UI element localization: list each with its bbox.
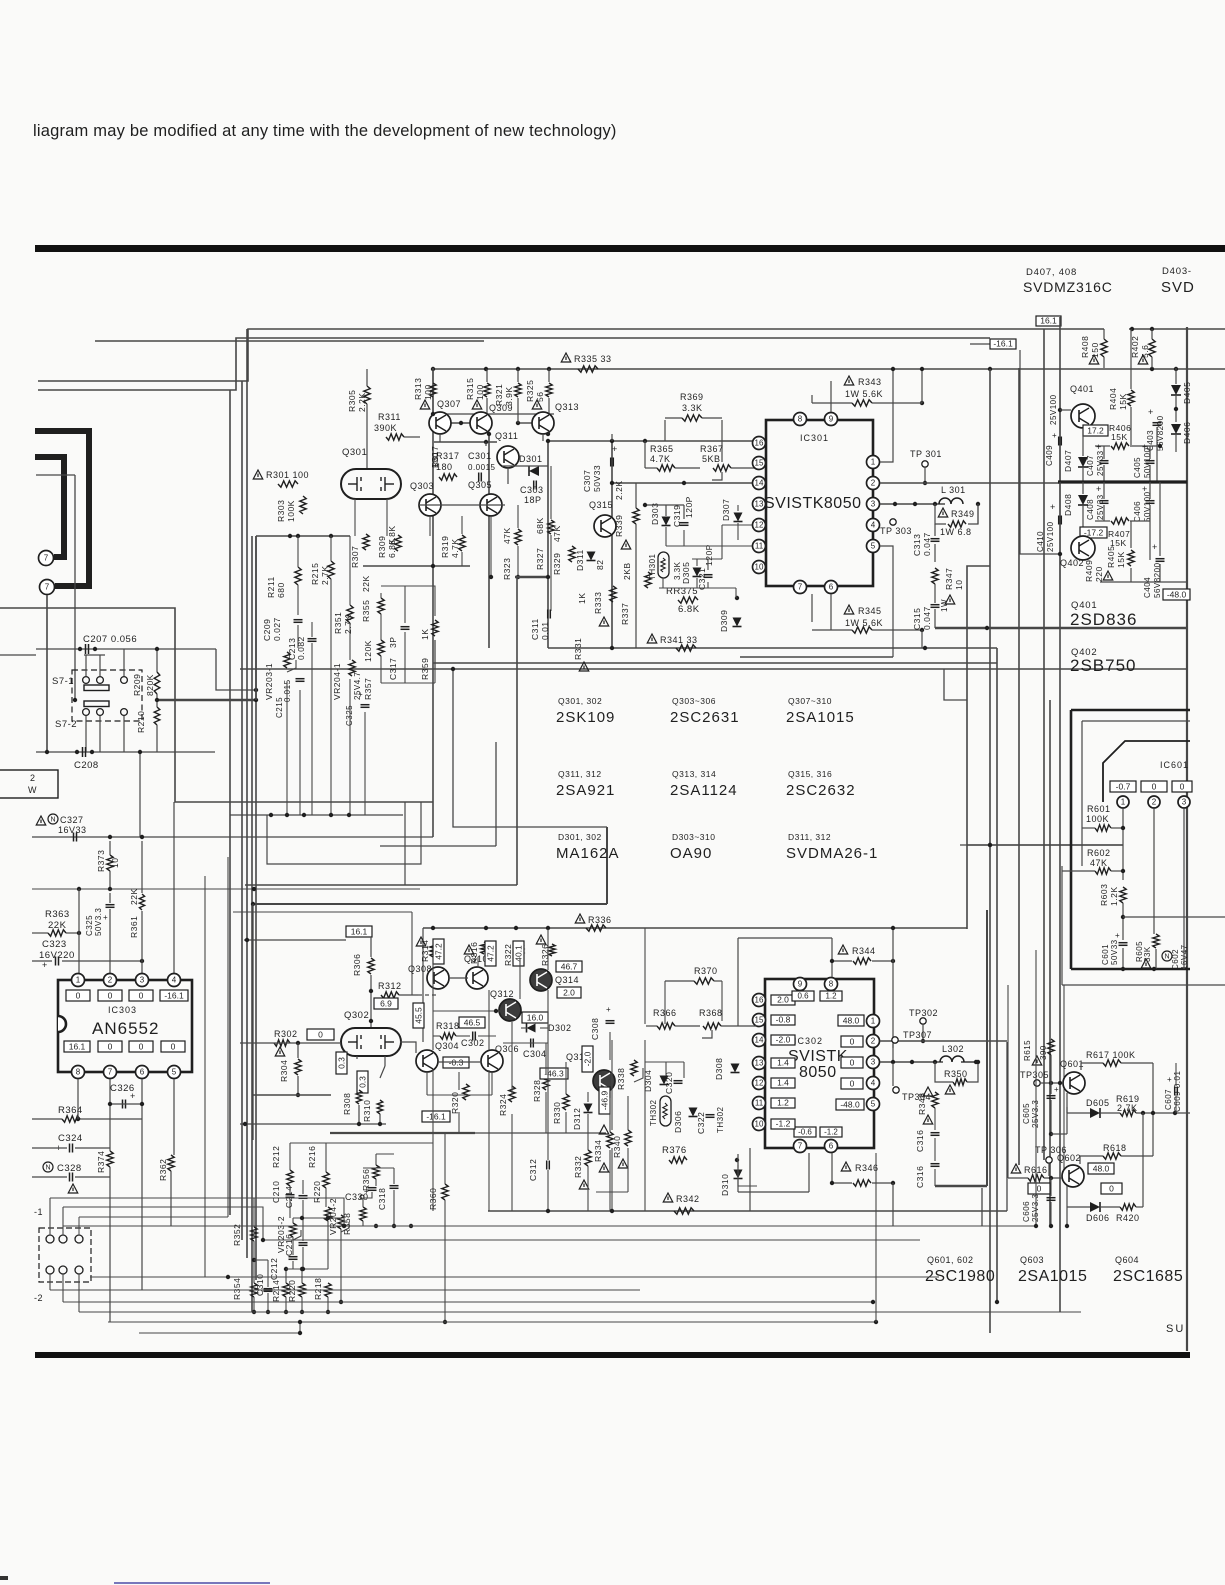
svg-text:-0.6: -0.6 [798, 1127, 812, 1136]
svg-text:C210: C210 [271, 1181, 281, 1203]
svg-text:Q304: Q304 [435, 1041, 459, 1051]
svg-text:12: 12 [755, 1079, 764, 1088]
svg-text:R365: R365 [650, 444, 674, 454]
svg-text:R356: R356 [361, 1169, 371, 1191]
svg-text:R323: R323 [502, 558, 512, 580]
svg-text:+: + [130, 1091, 136, 1101]
svg-text:-0.7: -0.7 [1116, 781, 1131, 791]
svg-text:R216: R216 [307, 1146, 317, 1168]
svg-text:7: 7 [108, 1068, 113, 1077]
svg-text:22K: 22K [129, 888, 139, 905]
svg-text:5KB: 5KB [702, 454, 721, 464]
svg-text:15: 15 [755, 459, 764, 468]
svg-text:47K: 47K [502, 527, 512, 544]
svg-text:VR204-1: VR204-1 [332, 663, 342, 700]
svg-text:R329: R329 [552, 553, 562, 575]
svg-text:Q314: Q314 [555, 975, 579, 985]
svg-text:C316: C316 [915, 1166, 925, 1188]
svg-text:3: 3 [871, 1058, 876, 1067]
svg-text:R303: R303 [276, 500, 286, 522]
svg-text:1.4: 1.4 [777, 1057, 789, 1067]
svg-text:0.3: 0.3 [336, 1057, 346, 1069]
svg-text:SVISTK: SVISTK [788, 1048, 848, 1065]
svg-text:R364: R364 [58, 1105, 83, 1116]
svg-text:R360: R360 [428, 1188, 438, 1210]
svg-text:0: 0 [1180, 781, 1185, 791]
svg-text:3: 3 [140, 976, 145, 985]
svg-text:11: 11 [755, 542, 764, 551]
svg-text:680: 680 [276, 582, 286, 598]
svg-text:15: 15 [755, 1016, 764, 1025]
svg-text:50V33: 50V33 [1110, 939, 1119, 965]
svg-text:D606: D606 [1086, 1213, 1110, 1223]
svg-text:1.2K: 1.2K [1109, 887, 1119, 907]
svg-text:0.027: 0.027 [272, 617, 282, 641]
svg-text:-16.1: -16.1 [426, 1111, 446, 1121]
svg-text:5: 5 [871, 542, 876, 551]
svg-text:13: 13 [755, 500, 764, 509]
svg-text:L 301: L 301 [941, 485, 966, 495]
svg-text:MA162A: MA162A [556, 845, 620, 862]
svg-text:4.7K: 4.7K [650, 454, 671, 464]
svg-text:SVDMA26-1: SVDMA26-1 [786, 845, 878, 862]
svg-text:R333: R333 [593, 592, 603, 614]
svg-text:R335 33: R335 33 [574, 354, 612, 364]
svg-text:2SK109: 2SK109 [556, 709, 615, 726]
svg-text:40.1: 40.1 [513, 945, 523, 962]
svg-text:+: + [1167, 1075, 1172, 1084]
svg-text:47K: 47K [552, 525, 562, 542]
svg-text:TP 301: TP 301 [910, 449, 942, 459]
svg-text:C407: C407 [1086, 455, 1095, 476]
svg-text:OA90: OA90 [670, 845, 712, 862]
svg-text:R319: R319 [440, 536, 450, 558]
svg-text:12: 12 [755, 521, 764, 530]
svg-text:1.2: 1.2 [825, 991, 837, 1000]
svg-text:+: + [103, 913, 108, 922]
svg-text:0.047: 0.047 [922, 606, 932, 630]
svg-text:R601: R601 [1087, 804, 1111, 814]
svg-text:+: + [1054, 1085, 1059, 1094]
svg-text:15K: 15K [1116, 551, 1126, 568]
svg-text:D303~310: D303~310 [672, 832, 715, 842]
svg-text:2.7K: 2.7K [320, 566, 330, 586]
svg-text:68K: 68K [535, 517, 545, 534]
svg-text:47.2: 47.2 [485, 945, 495, 962]
svg-text:C406: C406 [1133, 501, 1142, 522]
svg-text:Q315: Q315 [589, 500, 613, 510]
svg-text:C607: C607 [1164, 1089, 1173, 1110]
svg-text:D312: D312 [572, 1108, 582, 1130]
svg-text:C312: C312 [528, 1159, 538, 1181]
svg-text:AN6552: AN6552 [92, 1019, 159, 1038]
svg-text:16.1: 16.1 [1040, 315, 1057, 325]
svg-text:N: N [50, 817, 55, 824]
svg-text:SVISTK8050: SVISTK8050 [764, 495, 862, 512]
svg-text:+: + [1152, 542, 1158, 552]
svg-text:IC601: IC601 [1160, 760, 1189, 770]
svg-text:D407, 408: D407, 408 [1026, 267, 1077, 278]
svg-text:82: 82 [595, 560, 605, 570]
svg-text:Q313, 314: Q313, 314 [672, 769, 716, 779]
svg-text:Q604: Q604 [1115, 1255, 1139, 1265]
svg-text:SVDMZ316C: SVDMZ316C [1023, 279, 1113, 295]
svg-text:Q313: Q313 [555, 402, 579, 412]
svg-text:IC303: IC303 [108, 1005, 137, 1015]
svg-text:Q307: Q307 [437, 399, 461, 409]
svg-text:7: 7 [45, 583, 50, 592]
svg-text:R330: R330 [552, 1102, 562, 1124]
svg-text:C215: C215 [275, 697, 284, 718]
svg-text:3.3K: 3.3K [682, 403, 703, 413]
svg-text:R351: R351 [333, 612, 343, 634]
svg-text:2KB: 2KB [622, 562, 632, 580]
svg-text:Q305: Q305 [468, 480, 492, 490]
svg-text:R409: R409 [1084, 560, 1094, 582]
svg-text:9: 9 [829, 415, 834, 424]
svg-text:0: 0 [1152, 781, 1157, 791]
svg-text:0: 0 [171, 1041, 176, 1051]
svg-text:R209: R209 [132, 674, 142, 696]
svg-text:C214: C214 [284, 1186, 294, 1208]
svg-text:7: 7 [798, 583, 803, 592]
svg-text:120P: 120P [704, 544, 714, 566]
svg-text:R342: R342 [676, 1194, 700, 1204]
svg-text:14: 14 [755, 479, 764, 488]
svg-text:R331: R331 [573, 638, 583, 660]
svg-text:2SA1015: 2SA1015 [786, 709, 855, 726]
svg-text:D301: D301 [519, 454, 543, 464]
svg-text:R306: R306 [352, 954, 362, 976]
svg-text:-48.0: -48.0 [1167, 589, 1187, 599]
svg-text:6: 6 [140, 1068, 145, 1077]
svg-text:1.4: 1.4 [777, 1077, 789, 1087]
svg-text:C209: C209 [262, 619, 272, 641]
svg-text:47.2: 47.2 [433, 943, 443, 960]
svg-text:8: 8 [798, 415, 803, 424]
svg-text:R369: R369 [680, 392, 704, 402]
svg-text:R362: R362 [158, 1159, 168, 1181]
svg-text:R420: R420 [1116, 1213, 1140, 1223]
svg-text:liagram may be modified at any: liagram may be modified at any time with… [33, 122, 617, 140]
svg-text:0.3: 0.3 [357, 1076, 367, 1088]
svg-text:TP307: TP307 [903, 1030, 932, 1040]
svg-text:46.5: 46.5 [464, 1017, 481, 1027]
svg-text:-2.0: -2.0 [776, 1034, 791, 1044]
svg-text:5: 5 [871, 1100, 876, 1109]
svg-text:6.8K: 6.8K [678, 604, 700, 615]
svg-text:R210: R210 [136, 711, 146, 733]
svg-text:6: 6 [829, 583, 834, 592]
svg-text:C602: C602 [1171, 949, 1180, 970]
svg-text:R615: R615 [1023, 1040, 1032, 1061]
svg-text:0: 0 [318, 1029, 323, 1039]
svg-text:R321: R321 [494, 384, 504, 406]
svg-text:-46.3: -46.3 [544, 1068, 564, 1078]
svg-text:8: 8 [76, 1068, 81, 1077]
svg-text:R302: R302 [274, 1029, 298, 1039]
svg-text:4: 4 [172, 976, 177, 985]
svg-text:R305: R305 [347, 390, 357, 412]
svg-text:Q401: Q401 [1070, 384, 1094, 394]
svg-text:R347: R347 [944, 568, 954, 590]
svg-text:3.9K: 3.9K [504, 387, 514, 407]
svg-text:C322: C322 [696, 1112, 706, 1134]
svg-text:R346: R346 [855, 1163, 879, 1173]
svg-text:Q315, 316: Q315, 316 [788, 769, 832, 779]
svg-text:R215: R215 [310, 563, 320, 585]
svg-text:0.082: 0.082 [296, 636, 306, 660]
svg-text:Q302: Q302 [344, 1010, 369, 1021]
svg-text:R355: R355 [361, 600, 371, 622]
svg-text:D407: D407 [1063, 450, 1073, 472]
svg-text:D309: D309 [719, 610, 729, 632]
svg-text:C323: C323 [42, 939, 67, 950]
svg-text:R337: R337 [620, 603, 630, 625]
svg-text:R211: R211 [266, 576, 276, 598]
svg-text:C319: C319 [672, 505, 682, 527]
svg-text:C207 0.056: C207 0.056 [83, 634, 137, 645]
svg-text:50V100: 50V100 [1143, 491, 1152, 522]
svg-text:56: 56 [535, 392, 545, 402]
svg-text:7: 7 [798, 1142, 803, 1151]
svg-text:C328: C328 [57, 1163, 82, 1174]
svg-text:0.01: 0.01 [540, 621, 550, 640]
svg-text:R317: R317 [436, 451, 460, 461]
svg-text:1: 1 [871, 458, 876, 467]
svg-text:2SA921: 2SA921 [556, 782, 615, 799]
svg-text:0.0015: 0.0015 [468, 463, 496, 472]
svg-text:1: 1 [871, 1017, 876, 1026]
svg-text:S7-2: S7-2 [55, 719, 77, 730]
svg-text:16V33: 16V33 [58, 825, 87, 835]
svg-text:7: 7 [44, 554, 49, 563]
svg-text:2SC2632: 2SC2632 [786, 782, 856, 799]
svg-text:3: 3 [871, 500, 876, 509]
svg-text:4: 4 [871, 1079, 876, 1088]
svg-text:IC301: IC301 [800, 433, 829, 443]
svg-text:C303: C303 [520, 485, 544, 495]
svg-text:16.1: 16.1 [351, 926, 368, 936]
svg-text:2SB750: 2SB750 [1070, 656, 1137, 675]
svg-text:4: 4 [871, 521, 876, 530]
svg-text:1W 5.6K: 1W 5.6K [845, 389, 883, 399]
svg-text:R325: R325 [525, 380, 535, 402]
svg-text:100K: 100K [1086, 814, 1109, 824]
svg-text:Q601, 602: Q601, 602 [927, 1255, 974, 1265]
svg-text:10: 10 [755, 563, 764, 572]
svg-text:R373: R373 [96, 850, 106, 872]
svg-text:C316: C316 [915, 1130, 925, 1152]
svg-text:Q303: Q303 [410, 481, 434, 491]
svg-text:120P: 120P [684, 496, 694, 518]
svg-text:C307: C307 [582, 470, 592, 492]
svg-text:R343: R343 [858, 377, 882, 387]
svg-text:1K: 1K [420, 629, 430, 640]
svg-text:R370: R370 [694, 966, 718, 976]
svg-text:+: + [1096, 442, 1102, 452]
svg-text:R354: R354 [232, 1278, 242, 1300]
svg-text:2SD836: 2SD836 [1070, 610, 1137, 629]
svg-text:D303: D303 [650, 503, 660, 525]
svg-text:D311: D311 [575, 549, 585, 571]
svg-text:16: 16 [755, 439, 764, 448]
svg-text:D403-: D403- [1162, 266, 1192, 277]
svg-text:TH301: TH301 [648, 553, 657, 580]
svg-text:Q602: Q602 [1057, 1153, 1081, 1163]
svg-text:+: + [1142, 484, 1148, 494]
svg-text:R404: R404 [1108, 388, 1118, 410]
svg-text:8050: 8050 [799, 1064, 837, 1081]
svg-text:3P: 3P [388, 637, 398, 648]
svg-text:2SC1685: 2SC1685 [1113, 1268, 1183, 1285]
svg-text:R309: R309 [377, 536, 387, 558]
svg-text:C315: C315 [912, 608, 922, 630]
svg-text:14: 14 [755, 1036, 764, 1045]
svg-text:R220: R220 [287, 1280, 297, 1302]
svg-text:Q311, 312: Q311, 312 [558, 769, 602, 779]
svg-text:15K: 15K [1111, 432, 1128, 442]
svg-text:N: N [45, 1165, 50, 1172]
svg-text:D308: D308 [714, 1058, 724, 1080]
svg-text:L302: L302 [942, 1044, 964, 1054]
svg-text:0: 0 [850, 1036, 855, 1046]
svg-text:R361: R361 [129, 916, 139, 938]
svg-text:2: 2 [871, 479, 876, 488]
svg-text:5: 5 [172, 1068, 177, 1077]
svg-text:C404: C404 [1143, 577, 1152, 598]
svg-text:2.0: 2.0 [777, 994, 789, 1004]
svg-text:TH302: TH302 [716, 1106, 725, 1133]
svg-text:47K: 47K [1090, 858, 1108, 868]
svg-text:C311: C311 [530, 618, 540, 640]
svg-text:16.1: 16.1 [69, 1041, 86, 1051]
svg-text:1K: 1K [577, 593, 587, 604]
svg-text:-2: -2 [34, 1293, 43, 1303]
svg-text:45.5: 45.5 [413, 1007, 423, 1024]
svg-text:33K: 33K [1143, 946, 1152, 962]
svg-text:C308: C308 [590, 1018, 600, 1040]
svg-text:0: 0 [1109, 1183, 1114, 1193]
svg-text:+: + [1052, 431, 1057, 440]
svg-text:C601: C601 [1101, 944, 1110, 965]
svg-text:D306: D306 [673, 1111, 683, 1133]
svg-text:+: + [1148, 407, 1154, 417]
svg-text:Q301, 302: Q301, 302 [558, 696, 602, 706]
svg-text:Q312: Q312 [490, 989, 514, 999]
svg-text:W: W [28, 785, 37, 795]
svg-text:C318: C318 [377, 1188, 387, 1210]
svg-text:120K: 120K [363, 640, 373, 662]
svg-text:D302: D302 [548, 1023, 572, 1033]
svg-text:0: 0 [108, 990, 113, 1000]
svg-text:0.6: 0.6 [797, 991, 809, 1000]
svg-text:13: 13 [755, 1059, 764, 1068]
svg-text:18P: 18P [524, 495, 542, 505]
svg-text:R602: R602 [1087, 848, 1111, 858]
svg-text:R367: R367 [700, 444, 724, 454]
svg-text:8: 8 [829, 980, 834, 989]
svg-text:R357: R357 [363, 678, 373, 700]
svg-text:50V33: 50V33 [592, 465, 602, 492]
svg-text:TP305: TP305 [1020, 1070, 1049, 1080]
svg-text:-0.8: -0.8 [776, 1014, 791, 1024]
svg-text:+: + [612, 444, 618, 454]
svg-text:56V8200: 56V8200 [1153, 562, 1162, 598]
svg-text:50V3.3: 50V3.3 [94, 908, 103, 936]
svg-text:16.0: 16.0 [527, 1012, 544, 1022]
svg-text:R308: R308 [342, 1093, 352, 1115]
svg-text:C410: C410 [1036, 531, 1045, 552]
svg-text:R376: R376 [662, 1145, 687, 1156]
svg-text:Q311: Q311 [495, 431, 518, 441]
svg-text:-2.0: -2.0 [582, 1051, 592, 1066]
svg-text:R408: R408 [1080, 336, 1090, 358]
svg-text:0: 0 [76, 990, 81, 1000]
svg-text:0: 0 [850, 1078, 855, 1088]
svg-text:R366: R366 [653, 1008, 677, 1018]
svg-text:TP 303: TP 303 [880, 526, 912, 536]
svg-text:D405: D405 [1182, 382, 1192, 404]
svg-text:2SC2631: 2SC2631 [670, 709, 740, 726]
svg-text:0.047: 0.047 [922, 532, 932, 556]
svg-text:-1.2: -1.2 [824, 1127, 838, 1136]
svg-text:R339: R339 [614, 515, 624, 537]
svg-text:-48.0: -48.0 [840, 1099, 860, 1109]
svg-text:+: + [1142, 442, 1148, 452]
svg-text:R363: R363 [45, 909, 70, 920]
svg-text:R405: R405 [1106, 546, 1116, 568]
svg-text:-16.1: -16.1 [993, 338, 1013, 348]
svg-text:2: 2 [1152, 798, 1157, 807]
svg-text:-1.2: -1.2 [776, 1118, 791, 1128]
svg-text:2.0: 2.0 [563, 987, 575, 997]
svg-text:R311: R311 [378, 412, 401, 422]
svg-text:R359: R359 [420, 658, 430, 680]
svg-text:1: 1 [76, 976, 81, 985]
svg-text:D311, 312: D311, 312 [788, 832, 831, 842]
svg-text:C327: C327 [60, 815, 84, 825]
svg-text:R310: R310 [362, 1100, 372, 1122]
svg-text:SU: SU [1166, 1323, 1185, 1335]
svg-text:R345: R345 [858, 606, 882, 616]
svg-text:Q307~310: Q307~310 [788, 696, 832, 706]
svg-text:1W: 1W [940, 599, 949, 612]
svg-text:C409: C409 [1045, 445, 1054, 466]
svg-text:100K: 100K [286, 500, 296, 522]
svg-text:9: 9 [798, 980, 803, 989]
svg-text:48.0: 48.0 [1093, 1163, 1110, 1173]
svg-text:R218: R218 [313, 1278, 323, 1300]
svg-text:48.0: 48.0 [843, 1015, 860, 1025]
svg-text:0: 0 [139, 1041, 144, 1051]
svg-text:C216: C216 [284, 1234, 294, 1256]
svg-text:C313: C313 [912, 534, 922, 556]
svg-text:R212: R212 [271, 1146, 281, 1168]
svg-text:6.9: 6.9 [380, 998, 392, 1008]
svg-text:R327: R327 [535, 548, 545, 570]
svg-text:C301: C301 [468, 451, 492, 461]
svg-text:R214: R214 [271, 1280, 281, 1302]
svg-text:D605: D605 [1086, 1098, 1110, 1108]
svg-text:Q301: Q301 [342, 447, 367, 458]
svg-text:390K: 390K [374, 423, 397, 433]
svg-text:15K: 15K [1118, 393, 1128, 410]
svg-text:R344: R344 [852, 946, 876, 956]
svg-text:D406: D406 [1182, 422, 1192, 444]
svg-text:C304: C304 [523, 1049, 547, 1059]
svg-text:220: 220 [1094, 566, 1104, 582]
